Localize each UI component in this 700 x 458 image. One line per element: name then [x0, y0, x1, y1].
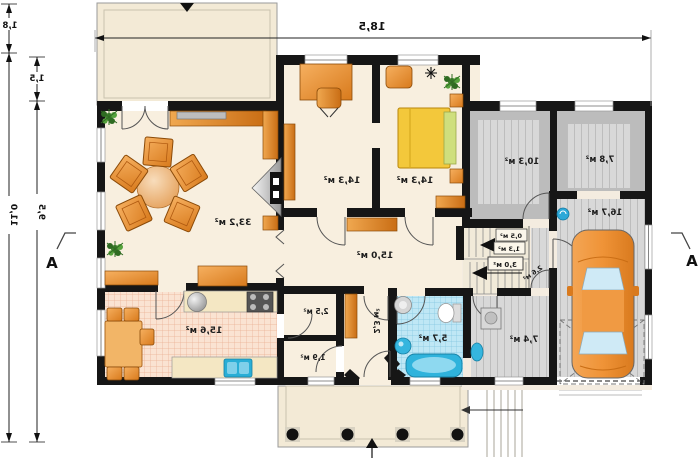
- dim-left-offset-top: 1,8: [2, 21, 17, 31]
- toilet: [438, 304, 454, 323]
- wardrobe: [284, 124, 295, 200]
- terrace: [97, 3, 277, 105]
- dim-top-width: 18,5: [358, 20, 385, 33]
- room-label-living: 33,2 м²: [215, 218, 252, 228]
- room-label-bathroom: 5,7 м²: [418, 334, 447, 344]
- utility-sink: [471, 343, 483, 361]
- room-label-bedroom: 14,3 м²: [397, 176, 434, 186]
- nightstand: [450, 94, 463, 107]
- wardrobe: [436, 196, 465, 208]
- nightstand: [450, 169, 463, 183]
- floor-plan-drawing: 33,2 м² 14,3 м² 14,3 м² 15,0 м² 15,6 м² …: [0, 0, 700, 458]
- dining-table: [105, 321, 142, 367]
- wardrobe: [263, 111, 278, 159]
- room-label-storage: 7,8 м²: [585, 155, 614, 165]
- room-label-office: 14,3 м²: [324, 176, 361, 186]
- room-label-larder: 1,9 м²: [300, 353, 325, 362]
- hall-wardrobe: [347, 218, 397, 231]
- room-label-hall: 15,0 м²: [357, 251, 394, 261]
- washbasin: [395, 338, 411, 354]
- dim-left-inner: 9,5: [36, 204, 46, 220]
- room-label-garage: 16,7 м²: [587, 208, 622, 218]
- porch: [278, 386, 468, 458]
- bench: [105, 271, 158, 285]
- room-label-vestibule: 2,3 м²: [372, 308, 381, 333]
- desk-chair: [317, 88, 341, 108]
- room-label-kitchen: 15,6 м²: [186, 326, 223, 336]
- sink-round: [188, 293, 207, 312]
- driveway: [461, 390, 642, 457]
- room-label-utility: 7,4 м²: [509, 335, 538, 345]
- section-letter-left: A: [46, 254, 58, 272]
- wardrobe: [263, 216, 278, 230]
- floor-plan-page: 33,2 м² 14,3 м² 14,3 м² 15,0 м² 15,6 м² …: [0, 0, 700, 458]
- vestibule-closet: [345, 294, 357, 338]
- armchair: [386, 66, 412, 88]
- room-label-stairs: 3,0 м²: [493, 261, 517, 269]
- tv: [177, 112, 226, 119]
- dim-left-offset-inner: 1,5: [29, 74, 44, 84]
- bed: [398, 108, 450, 168]
- room-label-under-stairs-small: 0,5 м²: [500, 232, 522, 240]
- dim-left-total: 11,0: [8, 204, 18, 226]
- bed-pillows: [444, 112, 456, 164]
- section-letter-right: A: [686, 252, 698, 270]
- drain-icon: [557, 208, 569, 220]
- sofa: [198, 266, 247, 286]
- car: [567, 230, 639, 378]
- room-label-pantry: 2,5 м²: [303, 307, 328, 316]
- room-label-boiler: 10,3 м²: [504, 157, 539, 167]
- room-label-under-stairs-large: 1,3 м²: [498, 245, 520, 253]
